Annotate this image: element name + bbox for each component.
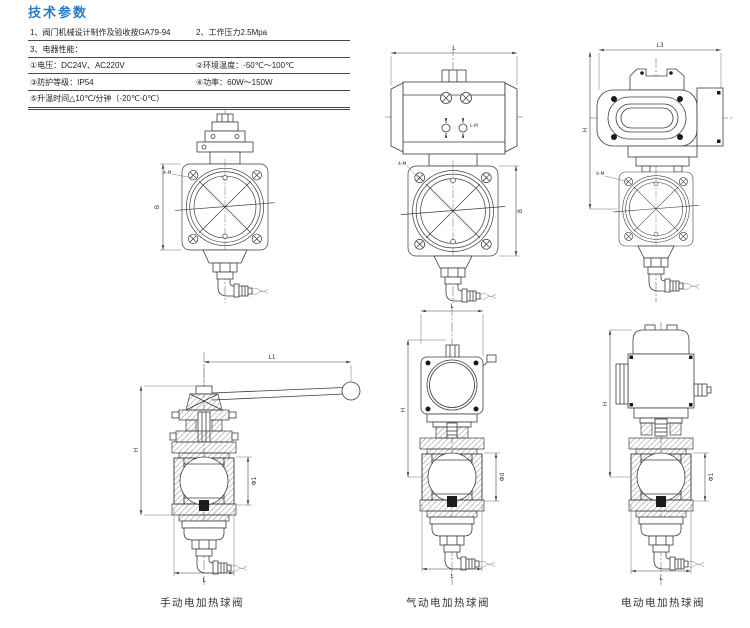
dim-label-length: L bbox=[450, 573, 454, 580]
dim-label-width: B bbox=[517, 209, 524, 213]
valve-body-section bbox=[172, 442, 247, 574]
dim-label-top-length: L bbox=[450, 303, 454, 310]
limit-switch bbox=[487, 355, 496, 362]
valve-body-top bbox=[613, 168, 699, 251]
valve-body-top bbox=[175, 159, 275, 255]
stem-top bbox=[196, 386, 212, 394]
dim-label-height: H bbox=[602, 402, 609, 407]
dim-label-width: B bbox=[154, 205, 161, 209]
dim-label-length: L3 bbox=[656, 42, 663, 49]
bottom-neck bbox=[203, 250, 247, 263]
dim-label-bore: Φ1 bbox=[251, 477, 258, 486]
dim-label-length: L bbox=[202, 577, 206, 584]
end-cap-right bbox=[505, 83, 517, 152]
port-label: L-M bbox=[470, 123, 478, 129]
stem-coupling bbox=[447, 423, 457, 438]
dim-label-height: H bbox=[400, 408, 407, 413]
dim-label-height: H bbox=[582, 128, 589, 133]
cable-gland bbox=[644, 258, 699, 292]
dim-label-bore: Φd bbox=[499, 473, 506, 482]
manual-valve-top-view: B 4-M bbox=[154, 110, 275, 303]
caption-electric-valve: 电动电加热球阀 bbox=[593, 595, 733, 610]
mounting-flange bbox=[628, 146, 697, 157]
dim-label-handle-length: L1 bbox=[268, 354, 275, 361]
motor-dome bbox=[633, 330, 689, 354]
stem-coupling bbox=[655, 419, 667, 436]
valve-body-section bbox=[420, 438, 495, 570]
top-handle-bracket bbox=[630, 69, 684, 90]
caption-pneumatic-valve: 气动电加热球阀 bbox=[378, 595, 518, 610]
electric-valve-assembly-view: L3 H 4-M bbox=[582, 42, 732, 303]
handle-ball-end bbox=[342, 382, 360, 400]
bottom-neck bbox=[638, 246, 674, 258]
cable-entry bbox=[694, 384, 707, 396]
stem-cap bbox=[217, 114, 233, 122]
bottom-neck bbox=[434, 256, 472, 268]
bolt-callout: 4-M bbox=[163, 170, 171, 176]
mounting-plate bbox=[427, 414, 477, 422]
air-port-block bbox=[442, 70, 466, 82]
pneumatic-valve-section-view: L H Φd L bbox=[400, 303, 506, 585]
actuator-cylinder bbox=[403, 82, 505, 154]
cable-gland bbox=[441, 268, 496, 302]
dim-label-length: L bbox=[659, 575, 663, 582]
dim-label-length: L bbox=[452, 45, 456, 52]
pneumatic-valve-assembly-view: L L-M B 4-M bbox=[385, 45, 524, 303]
manual-valve-section-view: L1 H Φ1 L bbox=[133, 352, 360, 585]
terminal-cover bbox=[697, 88, 723, 146]
mounting-plate bbox=[634, 408, 688, 418]
valve-body-section bbox=[629, 438, 704, 570]
electric-valve-section-view: H Φ1 L bbox=[602, 322, 715, 585]
valve-body-top bbox=[401, 161, 505, 262]
terminal-panel bbox=[616, 364, 628, 404]
end-cap-left bbox=[391, 83, 403, 152]
lever-handle bbox=[212, 388, 344, 394]
cable-gland bbox=[213, 263, 268, 297]
caption-manual-valve: 手动电加热球阀 bbox=[132, 595, 272, 610]
motor-housing bbox=[628, 354, 694, 408]
bolt-callout: 4-M bbox=[596, 171, 604, 177]
actuator-end-view bbox=[421, 357, 483, 414]
dim-label-height: H bbox=[133, 448, 140, 453]
bolt-callout: 4-M bbox=[398, 161, 406, 167]
technical-drawings: B 4-M L L-M bbox=[0, 0, 750, 628]
dim-label-bore: Φ1 bbox=[708, 473, 715, 482]
air-port-block bbox=[446, 345, 459, 358]
catalog-page: 技术参数 1、阀门机械设计制作及验收按GA79-94 2、工作压力2.5Mpa … bbox=[0, 0, 750, 628]
